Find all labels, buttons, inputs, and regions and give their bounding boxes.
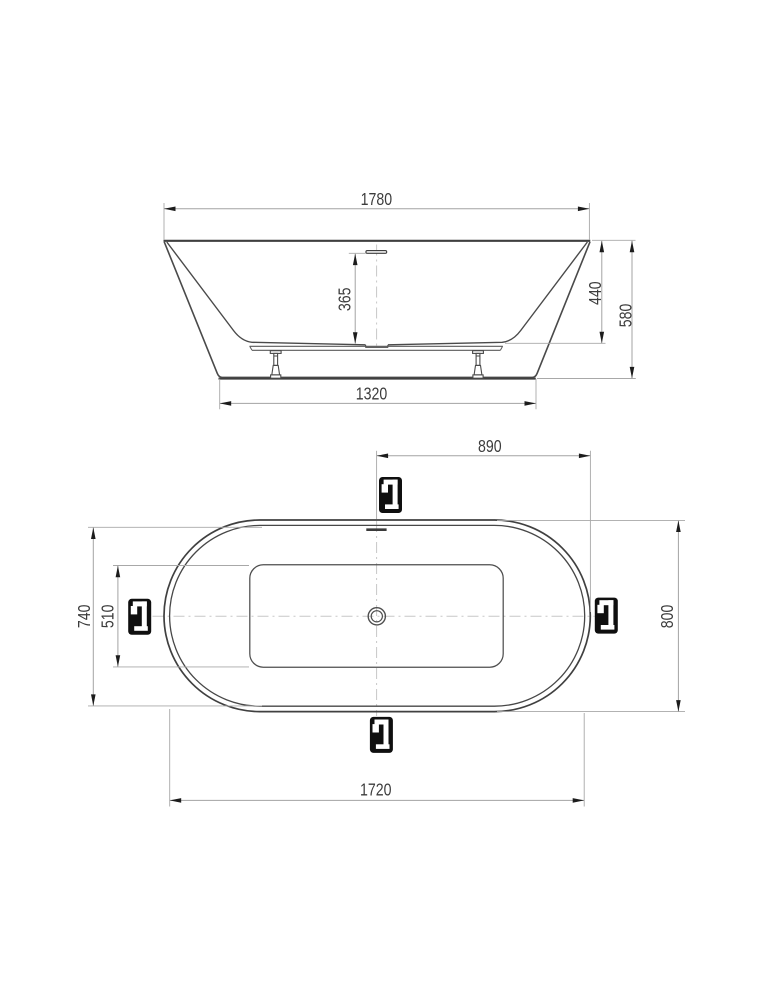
- svg-text:1780: 1780: [361, 189, 393, 209]
- svg-text:800: 800: [657, 604, 677, 628]
- svg-text:890: 890: [478, 436, 502, 456]
- svg-text:1720: 1720: [360, 780, 392, 800]
- svg-text:510: 510: [98, 604, 118, 628]
- svg-text:580: 580: [615, 303, 635, 327]
- svg-text:440: 440: [585, 281, 605, 305]
- svg-text:365: 365: [334, 288, 354, 312]
- svg-text:740: 740: [74, 604, 94, 628]
- svg-text:1320: 1320: [356, 384, 388, 404]
